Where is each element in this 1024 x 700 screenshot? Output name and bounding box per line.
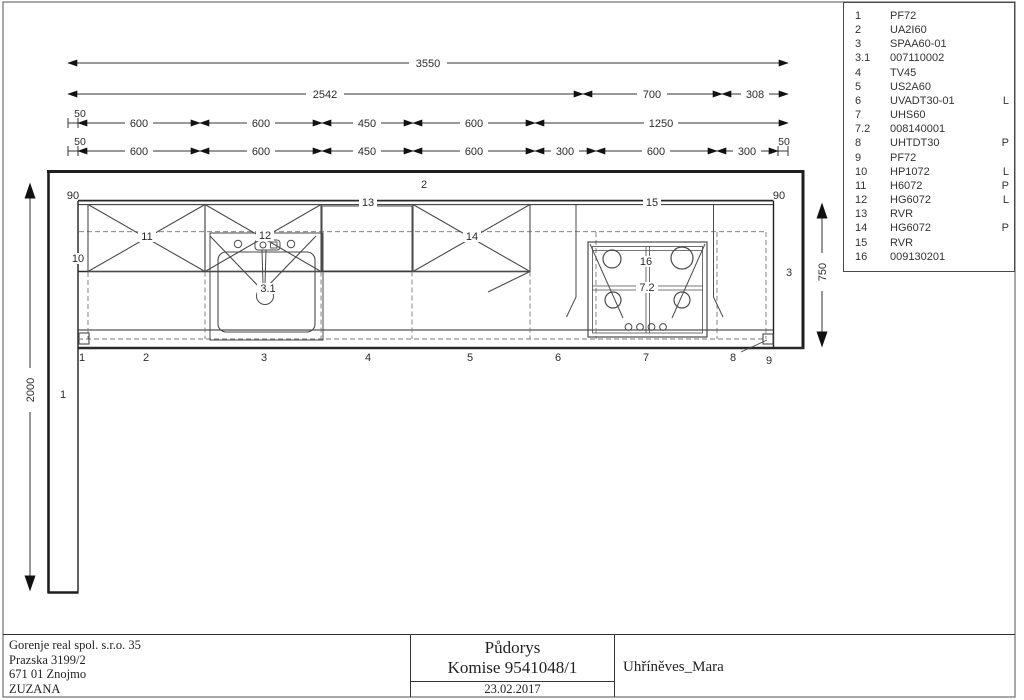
parts-row: 2 UA2I60 <box>855 23 1009 37</box>
part-number: 7 <box>855 108 890 122</box>
position-label: 2 <box>143 352 149 364</box>
position-label: 4 <box>365 352 371 364</box>
parts-row: 7.2 008140001 <box>855 122 1009 136</box>
parts-row: 5 US2A60 <box>855 80 1009 94</box>
dim-label: 1250 <box>649 118 673 130</box>
part-side: L <box>995 165 1009 179</box>
part-code: PF72 <box>890 151 995 165</box>
item-label-13: 13 <box>362 197 374 209</box>
knob <box>660 324 667 331</box>
part-number: 7.2 <box>855 122 890 136</box>
dim-label: 600 <box>465 118 483 130</box>
dim-label: 600 <box>252 118 270 130</box>
walls <box>47 170 805 594</box>
offset-right-label: 90 <box>773 190 785 202</box>
shelf-13 <box>322 206 412 271</box>
item-label-14: 14 <box>466 231 478 243</box>
hidden-lines <box>78 232 766 339</box>
company-line: ZUZANA <box>9 682 404 697</box>
part-number: 13 <box>855 207 890 221</box>
part-side <box>995 80 1009 94</box>
part-side <box>995 23 1009 37</box>
knob <box>637 324 644 331</box>
parts-row: 4 TV45 <box>855 66 1009 80</box>
dim-label: 600 <box>130 118 148 130</box>
part-code: 007110002 <box>890 51 995 65</box>
drawing-sheet: 3550 2542 700 308 50 600 600 450 600 125… <box>0 0 1024 700</box>
part-side: L <box>995 193 1009 207</box>
part-number: 16 <box>855 250 890 264</box>
part-side <box>995 207 1009 221</box>
part-number: 10 <box>855 165 890 179</box>
dim-label: 700 <box>643 89 661 101</box>
parts-row: 13 RVR <box>855 207 1009 221</box>
part-code: HP1072 <box>890 165 995 179</box>
burner <box>603 250 621 268</box>
knob <box>625 324 632 331</box>
parts-row: 15 RVR <box>855 236 1009 250</box>
wall-left-label: 1 <box>60 389 66 401</box>
part-code: UA2I60 <box>890 23 995 37</box>
company-line: 671 01 Znojmo <box>9 667 404 682</box>
part-code: UHTDT30 <box>890 136 995 150</box>
part-side <box>995 122 1009 136</box>
parts-row: 6 UVADT30-01 L <box>855 94 1009 108</box>
part-side: P <box>995 179 1009 193</box>
part-number: 3 <box>855 37 890 51</box>
item-label-16: 16 <box>640 256 652 268</box>
dim-label: 600 <box>647 146 665 158</box>
part-code: HG6072 <box>890 221 995 235</box>
dim-label: 600 <box>252 146 270 158</box>
dim-label: 300 <box>556 146 574 158</box>
dimension-row-3 <box>68 118 788 128</box>
parts-row: 7 UHS60 <box>855 108 1009 122</box>
parts-row: 3.1 007110002 <box>855 51 1009 65</box>
dim-label-vertical: 750 <box>817 263 829 281</box>
part-number: 11 <box>855 179 890 193</box>
parts-row: 12 HG6072 L <box>855 193 1009 207</box>
item-label-12: 12 <box>259 230 271 242</box>
part-side <box>995 250 1009 264</box>
part-code: HG6072 <box>890 193 995 207</box>
part-code: 009130201 <box>890 250 995 264</box>
part-side <box>995 37 1009 51</box>
wall-cabinet-14 <box>413 205 530 293</box>
dim-label: 600 <box>465 146 483 158</box>
wall-top-label: 2 <box>421 179 427 191</box>
parts-row: 11 H6072 P <box>855 179 1009 193</box>
part-side <box>995 108 1009 122</box>
title-block-center: Půdorys Komise 9541048/1 23.02.2017 <box>410 635 615 697</box>
part-number: 9 <box>855 151 890 165</box>
part-number: 2 <box>855 23 890 37</box>
drawing-date: 23.02.2017 <box>411 681 614 697</box>
filler-panel-right <box>763 334 773 344</box>
parts-row: 9 PF72 <box>855 151 1009 165</box>
parts-list: 1 PF72 2 UA2I60 3 SPAA60-01 3.1 00711000… <box>843 2 1015 272</box>
position-label: 8 <box>730 352 736 364</box>
part-number: 4 <box>855 66 890 80</box>
part-code: PF72 <box>890 9 995 23</box>
position-label: 5 <box>467 352 473 364</box>
company-line: Gorenje real spol. s.r.o. 35 <box>9 638 404 653</box>
part-code: SPAA60-01 <box>890 37 995 51</box>
part-side: P <box>995 221 1009 235</box>
dim-label: 300 <box>738 146 756 158</box>
item-label-7-2: 7.2 <box>639 282 654 294</box>
drawing-type: Půdorys <box>411 635 614 658</box>
commission-number: Komise 9541048/1 <box>411 658 614 678</box>
dimension-right-wall: 750 <box>815 204 829 346</box>
part-side <box>995 151 1009 165</box>
parts-row: 10 HP1072 L <box>855 165 1009 179</box>
dimension-left-wall: 2000 <box>23 184 37 590</box>
part-side: P <box>995 136 1009 150</box>
position-label: 7 <box>643 352 649 364</box>
part-number: 5 <box>855 80 890 94</box>
item-label-15: 15 <box>646 197 658 209</box>
part-code: RVR <box>890 207 995 221</box>
leader-line <box>741 340 767 352</box>
part-code: RVR <box>890 236 995 250</box>
company-line: Prazska 3199/2 <box>9 653 404 668</box>
part-side <box>995 66 1009 80</box>
dim-label: 450 <box>358 146 376 158</box>
title-block: Gorenje real spol. s.r.o. 35Prazska 3199… <box>3 634 1015 697</box>
parts-row: 3 SPAA60-01 <box>855 37 1009 51</box>
parts-rows: 1 PF72 2 UA2I60 3 SPAA60-01 3.1 00711000… <box>844 3 1014 264</box>
dimension-row-4 <box>68 146 788 156</box>
dim-label: 50 <box>778 136 790 148</box>
project-name: Uhříněves_Mara <box>615 635 1015 697</box>
part-side <box>995 236 1009 250</box>
part-code: UHS60 <box>890 108 995 122</box>
part-side: L <box>995 94 1009 108</box>
item-label-3-1: 3.1 <box>260 283 275 295</box>
part-side <box>995 51 1009 65</box>
dim-label: 2542 <box>313 89 337 101</box>
position-label: 3 <box>261 352 267 364</box>
part-number: 14 <box>855 221 890 235</box>
title-block-company: Gorenje real spol. s.r.o. 35Prazska 3199… <box>3 635 410 697</box>
part-number: 6 <box>855 94 890 108</box>
part-code: TV45 <box>890 66 995 80</box>
offset-left-label: 90 <box>67 190 79 202</box>
part-number: 3.1 <box>855 51 890 65</box>
position-label: 1 <box>79 352 85 364</box>
counter-run <box>78 201 805 348</box>
dim-label: 600 <box>130 146 148 158</box>
part-code: H6072 <box>890 179 995 193</box>
part-code: US2A60 <box>890 80 995 94</box>
part-number: 1 <box>855 9 890 23</box>
parts-row: 16 009130201 <box>855 250 1009 264</box>
part-number: 12 <box>855 193 890 207</box>
item-label-10: 10 <box>72 253 84 265</box>
base-position-labels: 1 2 3 4 5 6 7 8 9 <box>79 352 772 367</box>
parts-row: 1 PF72 <box>855 9 1009 23</box>
dim-total-label: 3550 <box>416 58 440 70</box>
item-label-11: 11 <box>141 231 152 243</box>
dim-label: 50 <box>74 136 86 148</box>
parts-row: 8 UHTDT30 P <box>855 136 1009 150</box>
part-number: 15 <box>855 236 890 250</box>
part-code: UVADT30-01 <box>890 94 995 108</box>
parts-row: 14 HG6072 P <box>855 221 1009 235</box>
part-side <box>995 9 1009 23</box>
part-code: 008140001 <box>890 122 995 136</box>
dim-label: 308 <box>746 89 764 101</box>
position-label: 9 <box>766 355 772 367</box>
filler-panel-left <box>79 333 89 344</box>
position-label: 6 <box>555 352 561 364</box>
dim-label: 450 <box>358 118 376 130</box>
dim-label: 50 <box>74 108 86 120</box>
part-number: 8 <box>855 136 890 150</box>
wall-right-label: 3 <box>786 267 792 279</box>
dim-label-vertical: 2000 <box>25 378 37 402</box>
